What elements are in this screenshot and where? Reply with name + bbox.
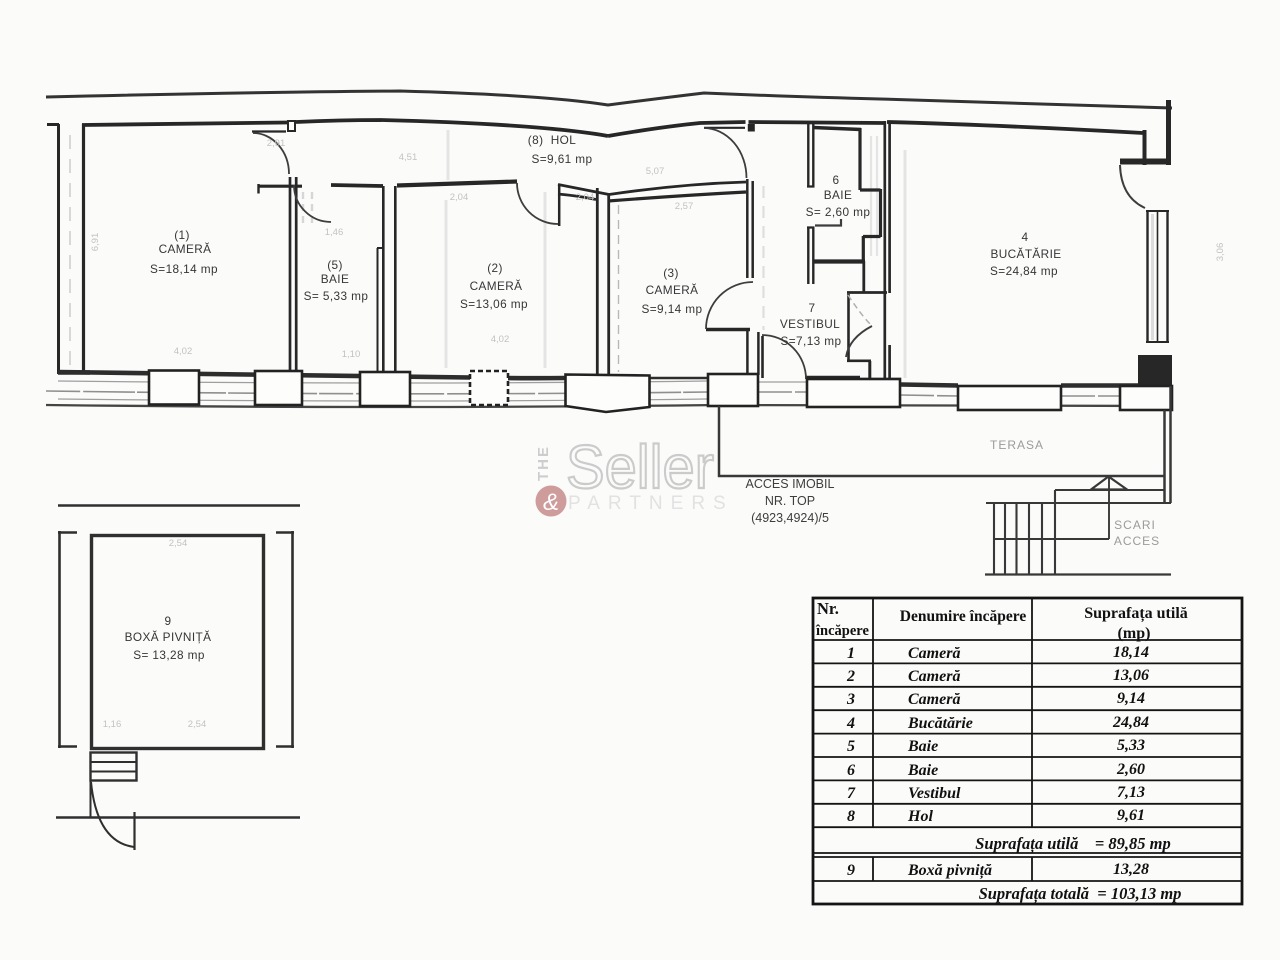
svg-text:5,07: 5,07 bbox=[646, 166, 665, 177]
svg-text:NR. TOP: NR. TOP bbox=[765, 494, 815, 508]
svg-text:2,04: 2,04 bbox=[450, 192, 469, 203]
svg-text:S=9,14 mp: S=9,14 mp bbox=[642, 302, 703, 316]
svg-text:6: 6 bbox=[833, 173, 840, 187]
svg-text:5: 5 bbox=[847, 738, 855, 755]
svg-text:Hol: Hol bbox=[907, 808, 933, 825]
svg-text:2,04: 2,04 bbox=[576, 192, 595, 203]
svg-text:13,28: 13,28 bbox=[1113, 861, 1149, 878]
svg-text:CAMERĂ: CAMERĂ bbox=[470, 279, 523, 293]
svg-text:VESTIBUL: VESTIBUL bbox=[780, 317, 840, 331]
svg-text:(8) HOL: (8) HOL bbox=[528, 133, 576, 147]
svg-text:4,02: 4,02 bbox=[491, 334, 510, 345]
svg-text:CAMERĂ: CAMERĂ bbox=[159, 242, 212, 256]
svg-text:2,54: 2,54 bbox=[169, 538, 188, 549]
svg-text:încăpere: încăpere bbox=[815, 623, 869, 639]
svg-text:3: 3 bbox=[846, 691, 855, 708]
svg-text:(2): (2) bbox=[487, 261, 503, 275]
svg-text:7: 7 bbox=[809, 301, 816, 315]
svg-text:ACCES: ACCES bbox=[1114, 534, 1160, 548]
svg-text:24,84: 24,84 bbox=[1112, 714, 1149, 731]
svg-text:9,61: 9,61 bbox=[1117, 807, 1145, 824]
svg-text:1,46: 1,46 bbox=[325, 227, 344, 238]
svg-text:13,06: 13,06 bbox=[1113, 667, 1149, 684]
svg-text:S= 2,60 mp: S= 2,60 mp bbox=[806, 205, 871, 219]
svg-text:(5): (5) bbox=[327, 258, 343, 272]
svg-text:BAIE: BAIE bbox=[321, 272, 349, 286]
svg-text:Boxă pivniță: Boxă pivniță bbox=[907, 862, 992, 880]
svg-text:6: 6 bbox=[847, 762, 855, 779]
svg-text:SCARI: SCARI bbox=[1114, 518, 1156, 532]
svg-text:2,60: 2,60 bbox=[1116, 761, 1145, 778]
svg-text:Cameră: Cameră bbox=[908, 691, 960, 708]
svg-text:4: 4 bbox=[846, 715, 855, 732]
svg-text:THE: THE bbox=[535, 445, 552, 481]
svg-text:(4923,4924)/5: (4923,4924)/5 bbox=[751, 511, 829, 525]
svg-text:5,33: 5,33 bbox=[1117, 737, 1145, 754]
svg-text:9: 9 bbox=[165, 614, 172, 628]
svg-text:Seller: Seller bbox=[566, 433, 714, 501]
svg-text:PARTNERS: PARTNERS bbox=[568, 493, 734, 514]
svg-text:S=18,14 mp: S=18,14 mp bbox=[150, 262, 218, 276]
svg-text:Baie: Baie bbox=[907, 762, 938, 779]
svg-text:4,02: 4,02 bbox=[174, 346, 193, 357]
svg-text:Suprafața totală = 103,13 mp: Suprafața totală = 103,13 mp bbox=[979, 884, 1182, 904]
svg-text:4: 4 bbox=[1022, 230, 1029, 244]
svg-text:2,54: 2,54 bbox=[188, 719, 207, 730]
svg-text:Vestibul: Vestibul bbox=[908, 785, 961, 802]
svg-text:1,10: 1,10 bbox=[342, 349, 361, 360]
svg-text:Suprafața utilă = 89,85 mp: Suprafața utilă = 89,85 mp bbox=[975, 834, 1171, 854]
svg-text:S= 5,33 mp: S= 5,33 mp bbox=[304, 289, 369, 303]
svg-text:6,91: 6,91 bbox=[90, 233, 101, 252]
svg-text:2: 2 bbox=[846, 668, 855, 685]
svg-text:BAIE: BAIE bbox=[824, 188, 852, 202]
svg-text:18,14: 18,14 bbox=[1113, 644, 1149, 661]
svg-text:S=24,84 mp: S=24,84 mp bbox=[990, 264, 1058, 278]
svg-text:7: 7 bbox=[847, 785, 856, 802]
svg-text:1,16: 1,16 bbox=[103, 719, 122, 730]
svg-text:8: 8 bbox=[847, 808, 855, 825]
svg-text:Suprafața utilă: Suprafața utilă bbox=[1084, 605, 1188, 623]
svg-text:Cameră: Cameră bbox=[908, 668, 960, 685]
svg-text:TERASA: TERASA bbox=[990, 438, 1044, 452]
svg-text:Denumire încăpere: Denumire încăpere bbox=[900, 608, 1027, 625]
svg-text:ACCES IMOBIL: ACCES IMOBIL bbox=[746, 477, 835, 491]
svg-text:(3): (3) bbox=[663, 266, 679, 280]
svg-text:S=7,13 mp: S=7,13 mp bbox=[781, 334, 842, 348]
svg-text:2,57: 2,57 bbox=[675, 201, 694, 212]
svg-text:4,51: 4,51 bbox=[399, 152, 418, 163]
svg-text:7,13: 7,13 bbox=[1117, 784, 1145, 801]
svg-text:9: 9 bbox=[847, 862, 855, 879]
svg-text:2,91: 2,91 bbox=[267, 138, 286, 149]
svg-text:1: 1 bbox=[847, 645, 855, 662]
svg-text:S=9,61 mp: S=9,61 mp bbox=[532, 152, 593, 166]
svg-text:3,06: 3,06 bbox=[1215, 243, 1226, 262]
svg-text:(mp): (mp) bbox=[1118, 625, 1151, 642]
svg-text:CAMERĂ: CAMERĂ bbox=[646, 283, 699, 297]
svg-text:S=13,06 mp: S=13,06 mp bbox=[460, 297, 528, 311]
svg-text:S= 13,28 mp: S= 13,28 mp bbox=[133, 648, 205, 662]
svg-text:BUCĂTĂRIE: BUCĂTĂRIE bbox=[990, 247, 1061, 261]
svg-text:Cameră: Cameră bbox=[908, 645, 960, 662]
svg-text:&: & bbox=[543, 489, 559, 516]
svg-text:Bucătărie: Bucătărie bbox=[907, 715, 973, 732]
svg-text:9,14: 9,14 bbox=[1117, 690, 1145, 707]
svg-text:BOXĂ PIVNIȚĂ: BOXĂ PIVNIȚĂ bbox=[125, 630, 212, 644]
svg-text:Baie: Baie bbox=[907, 738, 938, 755]
svg-text:Nr.: Nr. bbox=[817, 599, 839, 618]
svg-text:(1): (1) bbox=[174, 228, 190, 242]
